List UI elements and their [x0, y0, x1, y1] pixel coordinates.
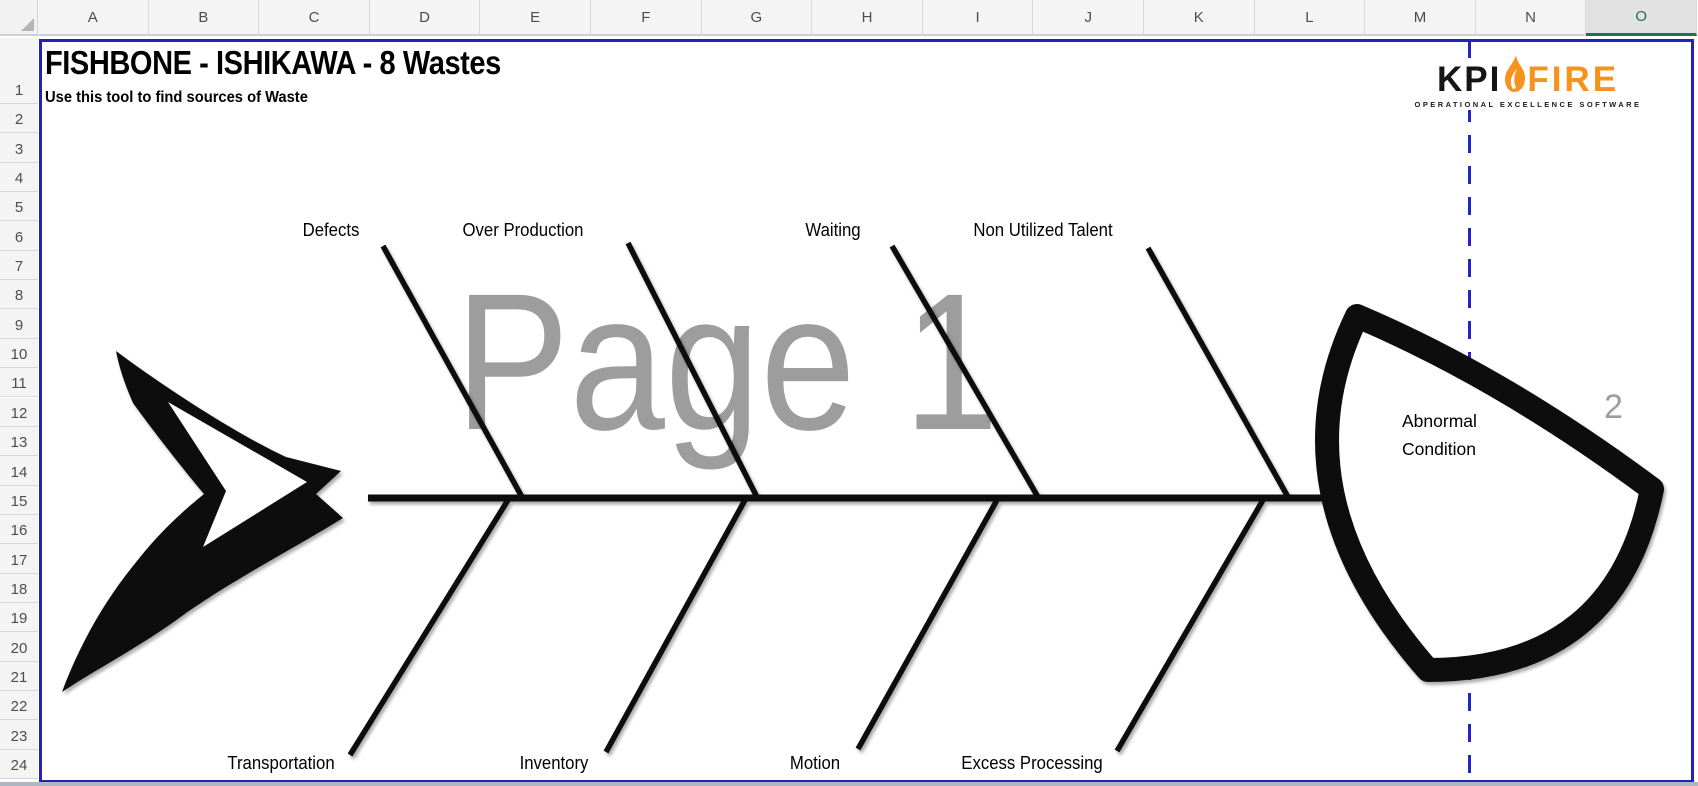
label-transportation[interactable]: Transportation [227, 753, 334, 774]
label-inventory[interactable]: Inventory [520, 753, 589, 774]
logo-kpi-text: KPI [1437, 62, 1501, 97]
fish-tail-shape[interactable] [62, 351, 343, 692]
bone-motion[interactable] [858, 500, 997, 749]
sheet-edge-strip [0, 782, 1698, 786]
bone-transportation[interactable] [350, 500, 508, 755]
fish-head-label[interactable]: Abnormal Condition [1402, 407, 1502, 463]
label-waiting[interactable]: Waiting [805, 220, 860, 241]
sheet-title[interactable]: FISHBONE - ISHIKAWA - 8 Wastes [45, 44, 501, 82]
bone-non-utilized-talent[interactable] [1148, 248, 1288, 497]
bone-excess-processing[interactable] [1117, 500, 1263, 751]
fishbone-diagram [0, 0, 1698, 786]
flame-icon [1505, 55, 1525, 97]
fish-head-shape[interactable] [1327, 316, 1652, 670]
label-excess-processing[interactable]: Excess Processing [961, 753, 1102, 774]
logo-fire-text: FIRE [1527, 62, 1619, 97]
bone-defects[interactable] [383, 246, 522, 497]
label-over-production[interactable]: Over Production [463, 220, 584, 241]
bone-waiting[interactable] [892, 246, 1038, 497]
label-defects[interactable]: Defects [303, 220, 360, 241]
logo-tagline: OPERATIONAL EXCELLENCE SOFTWARE [1406, 100, 1650, 109]
sheet-subtitle[interactable]: Use this tool to find sources of Waste [45, 89, 308, 107]
kpi-fire-logo[interactable]: KPI FIRE OPERATIONAL EXCELLENCE SOFTWARE [1406, 58, 1650, 110]
label-non-utilized-talent[interactable]: Non Utilized Talent [973, 220, 1112, 241]
label-motion[interactable]: Motion [790, 753, 840, 774]
bone-inventory[interactable] [606, 500, 745, 752]
bone-over-production[interactable] [628, 243, 757, 497]
